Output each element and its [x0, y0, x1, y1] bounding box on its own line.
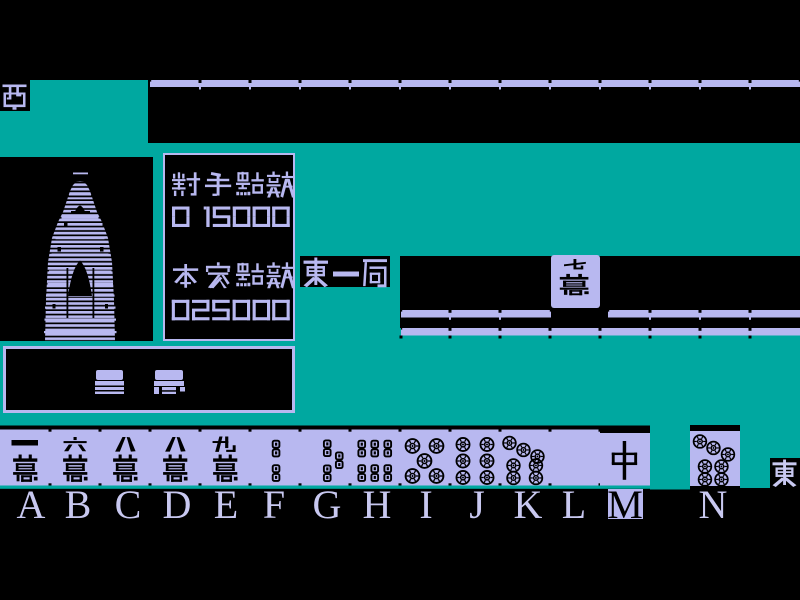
svg-text:B: B — [65, 482, 92, 527]
svg-text:A: A — [17, 482, 46, 527]
svg-text:M: M — [607, 482, 643, 527]
svg-text:H: H — [363, 482, 392, 527]
svg-text:C: C — [115, 482, 142, 527]
svg-text:I: I — [419, 482, 432, 527]
svg-text:K: K — [514, 482, 543, 527]
svg-text:E: E — [214, 482, 238, 527]
svg-text:L: L — [562, 482, 586, 527]
svg-text:F: F — [263, 482, 285, 527]
svg-text:N: N — [699, 482, 728, 527]
svg-text:G: G — [313, 482, 342, 527]
svg-text:J: J — [469, 482, 485, 527]
svg-text:D: D — [163, 482, 192, 527]
